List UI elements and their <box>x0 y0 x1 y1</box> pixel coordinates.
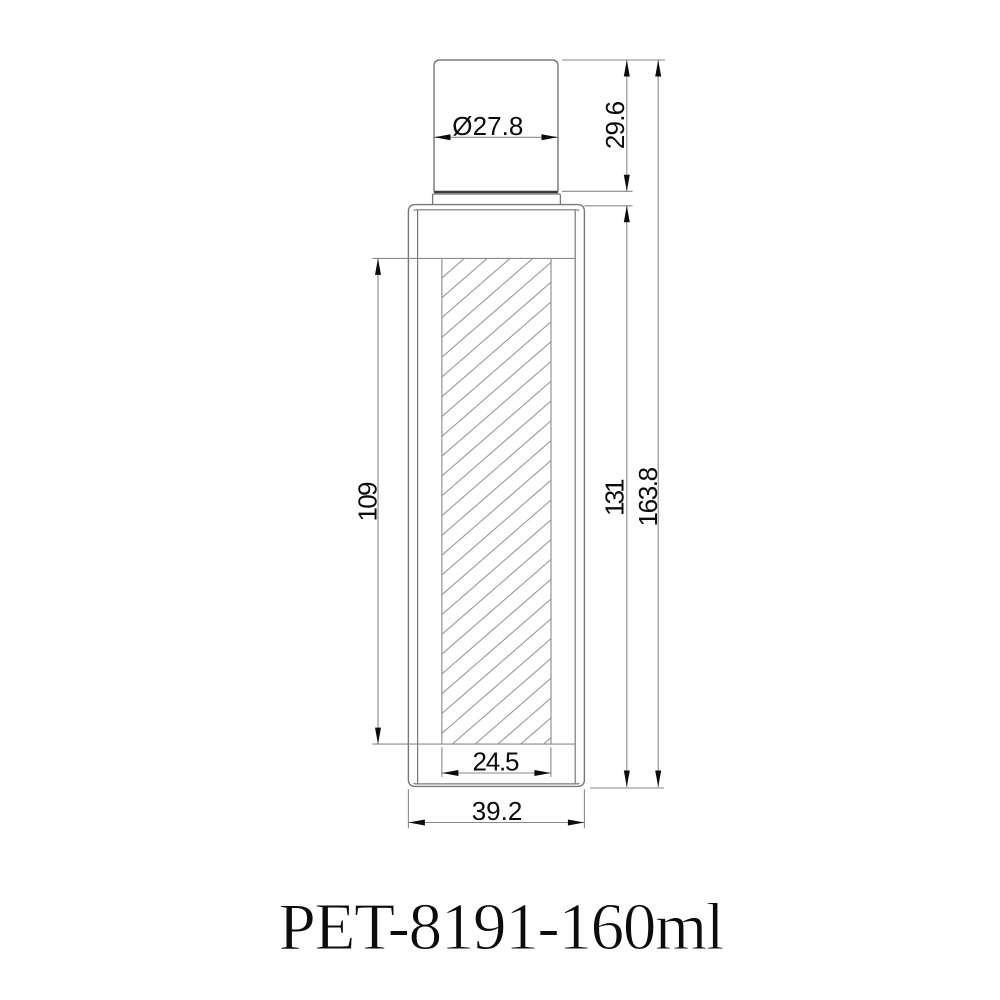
svg-text:39.2: 39.2 <box>472 796 523 826</box>
svg-text:131: 131 <box>600 478 630 516</box>
svg-text:163.8: 163.8 <box>633 467 663 527</box>
svg-text:Ø27.8: Ø27.8 <box>452 111 523 141</box>
svg-text:PET-8191-160ml: PET-8191-160ml <box>279 890 725 964</box>
svg-text:29.6: 29.6 <box>600 101 630 149</box>
svg-text:109: 109 <box>353 482 383 522</box>
svg-text:24.5: 24.5 <box>473 747 520 777</box>
